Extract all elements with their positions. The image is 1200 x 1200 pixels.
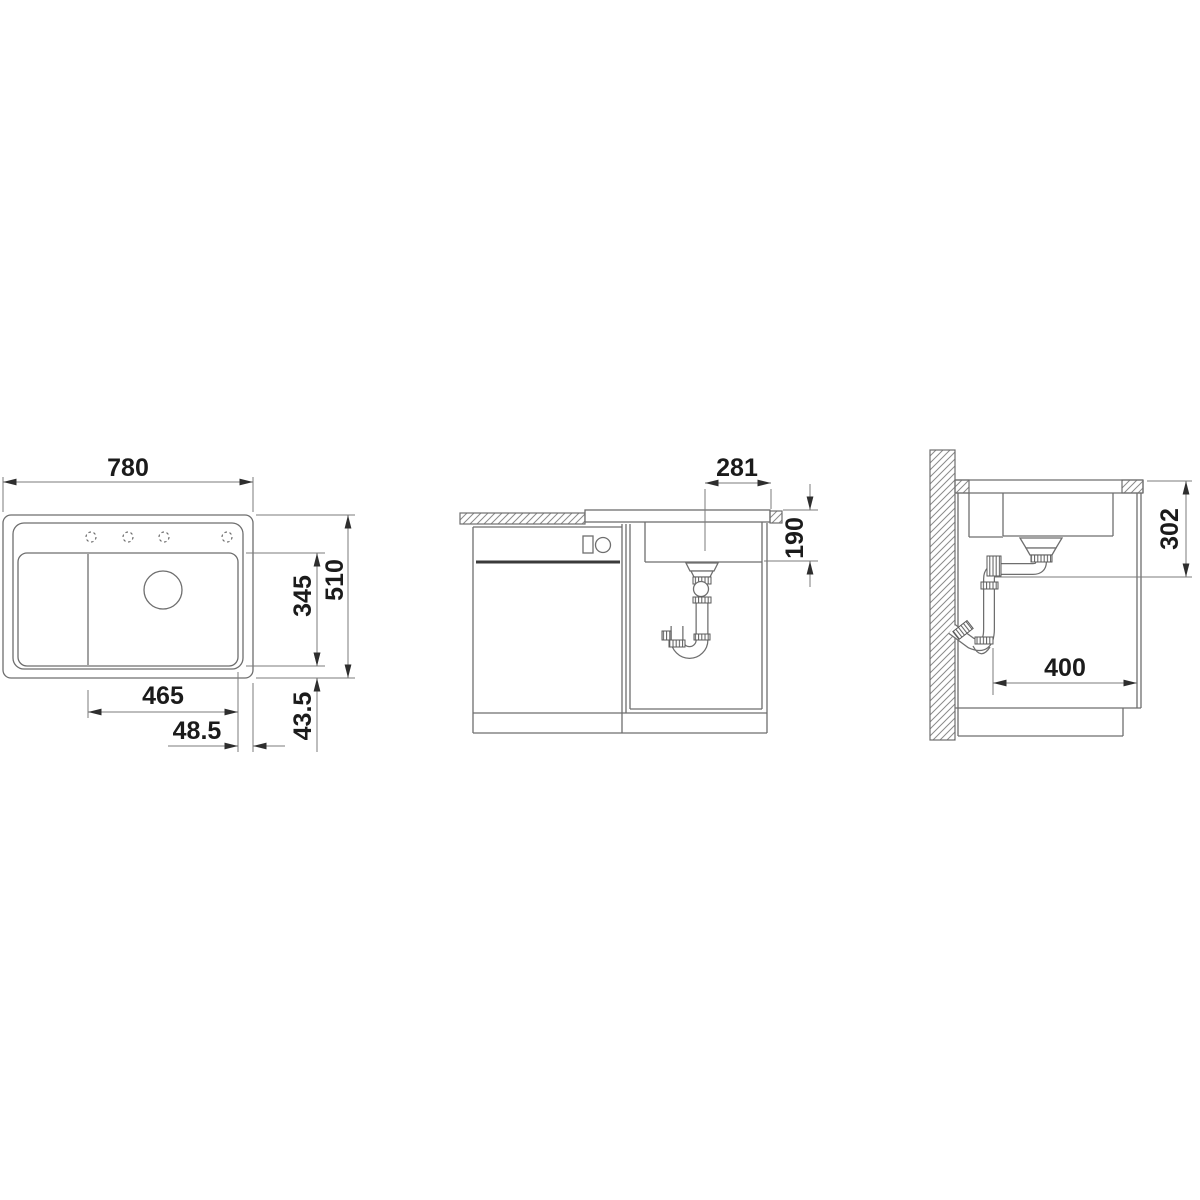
drain-elbow	[694, 582, 709, 597]
countertop-side	[955, 480, 1143, 493]
dimension-outlet-height: 302	[995, 481, 1192, 577]
sink-outer-edge	[3, 515, 253, 678]
dimension-overall-width: 780	[3, 454, 253, 512]
drawing-canvas: 780 510 345 465 48.5	[0, 0, 1200, 1200]
dim-label-400: 400	[1044, 654, 1086, 682]
drain-flange-side	[1020, 538, 1062, 548]
drain-flange	[686, 563, 718, 571]
sink-bowl-area	[18, 553, 238, 666]
dim-label-345: 345	[289, 575, 317, 617]
dim-label-510: 510	[321, 559, 349, 601]
top-view: 780 510 345 465 48.5	[3, 454, 355, 752]
dim-label-48-5: 48.5	[173, 717, 222, 745]
tap-hole-icons	[86, 532, 232, 542]
bowl-section-side	[958, 493, 1113, 708]
dimension-drain-offset: 281	[705, 454, 771, 551]
tap-hole-icon	[222, 532, 232, 542]
dim-label-43-5: 43.5	[289, 692, 317, 741]
dimension-offset-bottom: 43.5	[289, 632, 317, 752]
dimension-bowl-depth-front: 190	[764, 484, 818, 587]
dimension-offset-right: 48.5	[168, 683, 285, 752]
countertop-hatch	[460, 513, 585, 524]
sink-rim-profile	[585, 510, 770, 522]
tap-hole-icon	[123, 532, 133, 542]
drain-trap-front	[662, 563, 718, 652]
front-view: 281 190	[460, 454, 818, 733]
sink-cabinet-front	[473, 523, 767, 733]
dim-label-302: 302	[1156, 508, 1184, 550]
tap-hole-icon	[159, 532, 169, 542]
sink-installation-drawing: 780 510 345 465 48.5	[0, 0, 1200, 1200]
dim-label-281: 281	[716, 454, 758, 482]
dishwasher-control-icon	[583, 536, 593, 553]
wall-hatch	[930, 450, 955, 740]
dim-label-190: 190	[781, 517, 809, 559]
dim-label-780: 780	[107, 454, 149, 482]
dishwasher-knob-icon	[596, 538, 611, 553]
dim-label-465: 465	[142, 682, 184, 710]
side-view: 302 400	[930, 450, 1192, 740]
dimension-rear-clearance: 400	[993, 648, 1137, 695]
drain-hole	[144, 571, 182, 609]
drain-trap-side	[952, 538, 1062, 654]
dimension-bowl-depth: 345	[246, 553, 325, 666]
sink-rim	[13, 523, 243, 669]
dishwasher-cabinet	[473, 527, 622, 733]
tap-hole-icon	[86, 532, 96, 542]
